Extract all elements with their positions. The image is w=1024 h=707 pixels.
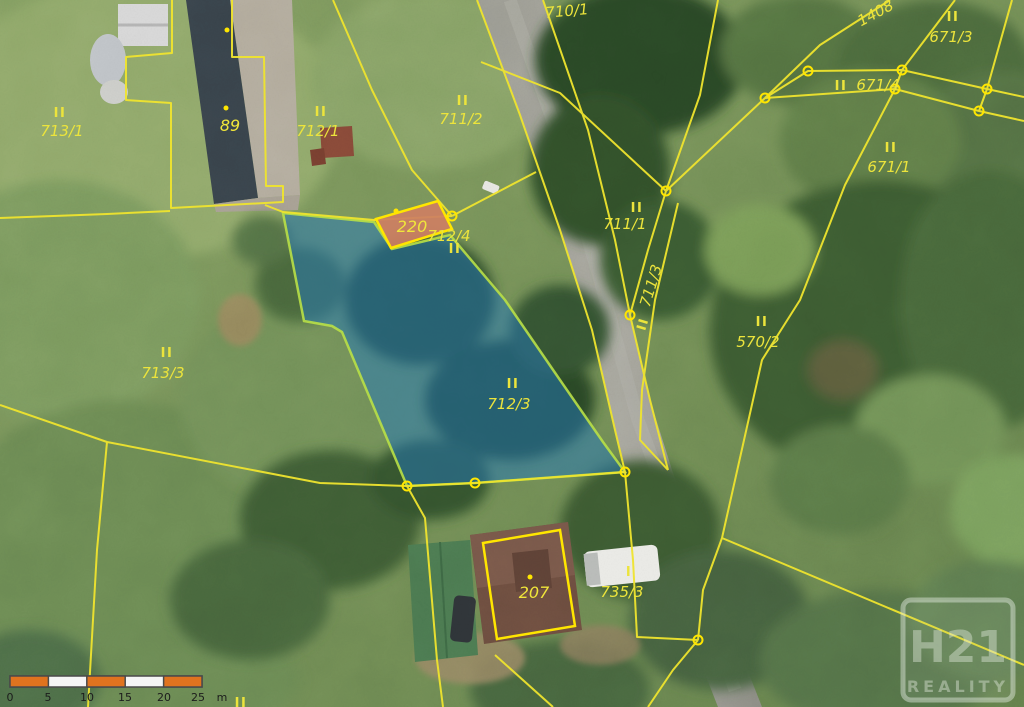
building-number-220: 220 — [397, 217, 428, 236]
parcel-label-735-3: 735/3 — [600, 583, 643, 601]
scale-unit: m — [217, 691, 228, 704]
parcel-label-671-3: 671/3 — [929, 28, 972, 46]
scale-tick-5: 5 — [45, 691, 52, 704]
parcel-label-570-2: 570/2 — [736, 333, 779, 351]
parcel-label-710-1: 710/1 — [545, 0, 590, 22]
landuse-mark-edge: II — [235, 696, 248, 707]
parcel-label-671-1: 671/1 — [867, 158, 910, 176]
h21-reality-watermark: H21 REALITY — [903, 600, 1013, 700]
landuse-mark-713-1: II — [54, 106, 67, 121]
watermark-brand: H21 — [909, 622, 1007, 673]
parcel-label-671-4: 671/4 — [856, 76, 899, 94]
parcel-label-713-3: 713/3 — [141, 364, 184, 382]
parcel-label-711-1: 711/1 — [603, 215, 646, 233]
building-number-207: 207 — [519, 583, 550, 602]
scale-tick-10: 10 — [80, 691, 94, 704]
landuse-mark-671-4: II — [835, 79, 848, 94]
landuse-mark-735-3: I — [626, 565, 632, 580]
landuse-mark-712-3: II — [507, 377, 520, 392]
cadastral-map-viewport[interactable]: 713/1 II 712/1 II 711/2 II 710/1 1408 67… — [0, 0, 1024, 707]
scale-tick-25: 25 — [191, 691, 205, 704]
landuse-mark-671-1: II — [885, 141, 898, 156]
cadastral-map[interactable]: 713/1 II 712/1 II 711/2 II 710/1 1408 67… — [0, 0, 1024, 707]
scale-tick-20: 20 — [157, 691, 171, 704]
landuse-mark-713-3: II — [161, 346, 174, 361]
landuse-mark-712-1: II — [315, 105, 328, 120]
parcel-label-713-1: 713/1 — [40, 122, 83, 140]
watermark-label: REALITY — [907, 677, 1009, 696]
landuse-mark-671-3: II — [947, 10, 960, 25]
landuse-mark-711-1: II — [631, 201, 644, 216]
landuse-mark-570-2: II — [756, 315, 769, 330]
building-number-89: 89 — [220, 116, 240, 135]
scale-tick-15: 15 — [118, 691, 132, 704]
parcel-label-711-2: 711/2 — [439, 110, 482, 128]
parcel-label-712-3: 712/3 — [487, 395, 530, 413]
scale-tick-0: 0 — [7, 691, 14, 704]
landuse-mark-711-2: II — [457, 94, 470, 109]
parcel-label-712-1: 712/1 — [296, 122, 339, 140]
landuse-mark-712-4: II — [449, 242, 462, 257]
